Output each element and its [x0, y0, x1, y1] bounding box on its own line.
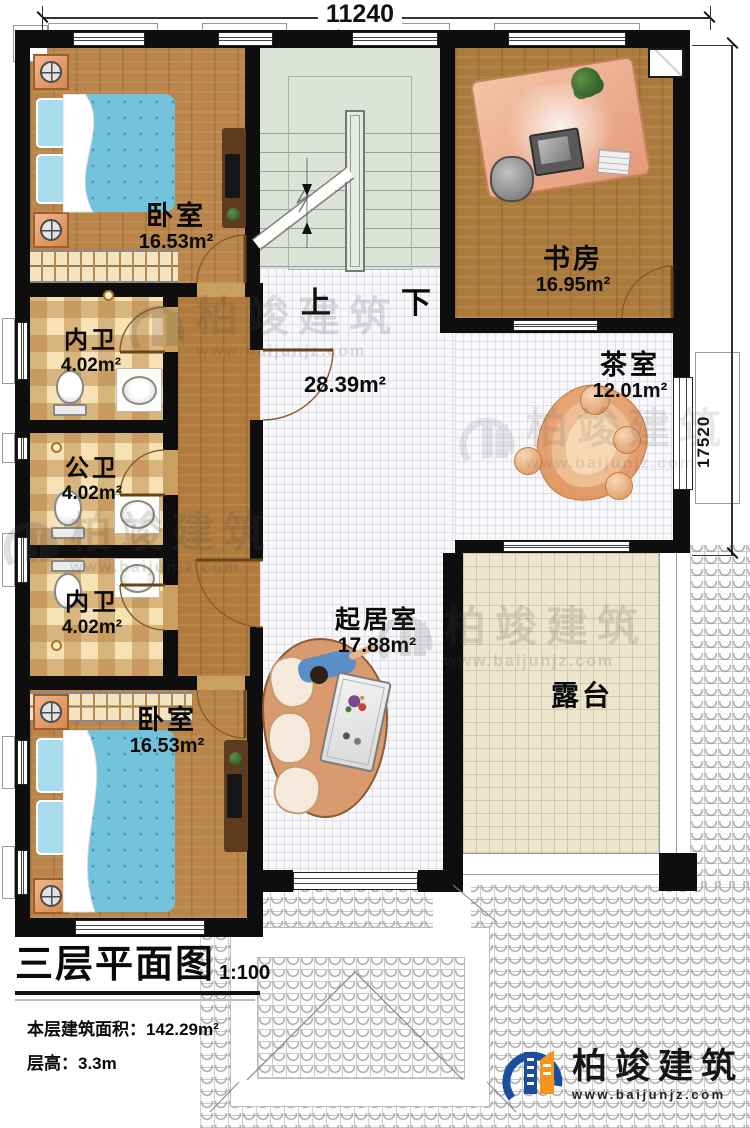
window-tea-terrace-door [503, 541, 630, 552]
sink-basin [122, 376, 157, 405]
label-study: 书房 16.95m² [536, 244, 611, 297]
toilet-tank [51, 527, 85, 539]
wall-hook-icon [51, 640, 62, 651]
terrace-parapet-bottom [463, 853, 677, 875]
room-area: 16.53m² [130, 735, 205, 757]
room-name: 起居室 [335, 606, 419, 634]
dimension-top-value: 11240 [318, 0, 402, 29]
window-left-5 [17, 850, 28, 895]
room-area: 12.01m² [593, 380, 668, 402]
room-name: 卧室 [139, 201, 214, 231]
door-opening-bedroom-top [197, 283, 245, 297]
window-top-2 [218, 32, 273, 46]
wall-tea-right-b [673, 490, 690, 553]
pillow [36, 154, 66, 204]
label-living-room: 起居室 17.88m² [335, 606, 419, 658]
wardrobe [30, 250, 178, 283]
toilet-tank [51, 560, 85, 572]
window-left-3 [17, 537, 28, 583]
room-area: 4.02m² [61, 355, 121, 376]
nightstand [33, 54, 69, 90]
wall-study-left-lower [440, 245, 455, 333]
stair-rail [345, 110, 365, 272]
room-area: 17.88m² [335, 634, 419, 658]
porch-inner-roof [257, 957, 465, 1079]
sink-basin [120, 500, 155, 529]
sill-left-5 [2, 846, 15, 899]
phone-icon [597, 149, 631, 176]
wall-outer-left [15, 30, 30, 937]
sofa-cushion [268, 712, 312, 764]
monitor-icon [227, 774, 242, 818]
nightstand [33, 212, 69, 248]
sink [116, 368, 162, 412]
wall-corridor-right-a [250, 283, 263, 350]
room-name: 露台 [551, 680, 613, 711]
wall-bedroom-bottom-right [247, 676, 263, 937]
room-name: 内卫 [61, 328, 121, 355]
brand-logo-icon [502, 1042, 564, 1108]
sink-basin [120, 564, 155, 593]
brand-name: 柏竣建筑 [572, 1049, 744, 1084]
door-opening-bedroom-bottom [197, 676, 245, 690]
label-bath-public: 公卫 4.02m² [62, 456, 122, 504]
scale-label: 1:100 [219, 962, 270, 985]
window-left-1 [17, 322, 28, 380]
label-stair-down: 下 [401, 278, 431, 322]
tea-stool [605, 472, 633, 500]
plant-icon [229, 752, 242, 765]
wall-bath-divider-2 [15, 545, 178, 558]
terrace-corner-post [659, 853, 697, 891]
plant-icon [227, 208, 240, 221]
wall-hook-icon [51, 442, 62, 453]
title-underline-thick [15, 991, 260, 995]
room-name: 书房 [536, 244, 611, 274]
title-block: 三层平面图 1:100 本层建筑面积：142.29m² 层高：3.3m [15, 933, 270, 1074]
nightstand [33, 694, 69, 730]
bed-blanket [63, 730, 123, 914]
sill-left-4 [2, 736, 15, 789]
sill-left-1 [2, 318, 15, 384]
label-terrace: 露台 [551, 680, 613, 711]
dimension-ext [710, 6, 711, 30]
wall-corridor-right-b [250, 420, 263, 560]
bed [33, 92, 178, 214]
room-name: 卧室 [130, 705, 205, 735]
lamp-icon [40, 61, 62, 83]
sill-left-3 [2, 533, 15, 587]
room-name: 内卫 [62, 590, 122, 617]
dimension-ext [692, 45, 734, 46]
building-area-text: 本层建筑面积：142.29m² [27, 1015, 270, 1040]
floor-height-text: 层高：3.3m [27, 1049, 270, 1074]
window-top-4 [508, 32, 626, 46]
dimension-right-value: 17520 [694, 378, 714, 468]
pillow [36, 738, 66, 793]
brand-website: www.baijunjz.com [572, 1087, 744, 1102]
dimension-line-right [731, 45, 733, 555]
lamp-icon [40, 219, 62, 241]
label-bedroom-top: 卧室 16.53m² [139, 201, 214, 254]
toilet-tank [53, 404, 87, 416]
pillow [36, 800, 66, 855]
room-area: 4.02m² [62, 617, 122, 638]
door-opening-bath-mid [163, 450, 178, 495]
label-bath-inner-top: 内卫 4.02m² [61, 328, 121, 376]
title-underline-thin [15, 999, 255, 1001]
bed-blanket [63, 94, 123, 214]
door-opening-bath-bottom [163, 585, 178, 630]
room-name: 茶室 [593, 350, 668, 380]
bedroom-desk [224, 740, 248, 852]
window-living-south [293, 872, 418, 890]
window-tea-top [513, 320, 598, 331]
room-area: 16.53m² [139, 231, 214, 253]
floor-plan-canvas: 卧室 16.53m² 书房 16.95m² 茶室 12.01m² 内卫 4.02… [0, 0, 750, 1128]
tea-stool [613, 426, 641, 454]
wall-tea-right-a [673, 333, 690, 377]
bedroom-desk [222, 128, 246, 228]
pillow [36, 98, 66, 148]
lamp-icon [40, 701, 62, 723]
room-name: 公卫 [62, 456, 122, 483]
dimension-ext [42, 6, 43, 30]
sill-left-2 [2, 433, 15, 463]
wall-stair-right [440, 48, 455, 245]
wall-stair-left [245, 48, 260, 283]
monitor-icon [225, 154, 240, 198]
label-bath-inner-bottom: 内卫 4.02m² [62, 590, 122, 638]
brand-logo: 柏竣建筑 www.baijunjz.com [502, 1042, 744, 1108]
label-hall-area: 28.39m² [304, 372, 386, 398]
window-top-1 [73, 32, 145, 46]
room-area: 16.95m² [536, 274, 611, 296]
label-stair-up: 上 [301, 278, 331, 322]
person-head-icon [310, 666, 328, 684]
page-title: 三层平面图 [15, 933, 215, 988]
wall-living-south-a [248, 870, 293, 892]
label-tea-room: 茶室 12.01m² [593, 350, 668, 403]
terrace-parapet-right [659, 553, 677, 875]
wall-living-south-b [418, 870, 463, 892]
door-opening-bath-top [163, 307, 178, 352]
flue-box [648, 48, 684, 78]
office-chair [490, 156, 534, 202]
wall-living-terrace [443, 553, 463, 892]
dimension-ext [692, 555, 734, 556]
window-bay-right [673, 377, 693, 490]
window-left-2 [17, 437, 28, 460]
window-left-4 [17, 740, 28, 785]
wall-hook-icon [103, 290, 114, 301]
room-area: 4.02m² [62, 483, 122, 504]
wall-bath-divider-1 [15, 420, 178, 433]
window-top-3 [352, 32, 438, 46]
tea-stool [514, 447, 542, 475]
monitor-icon [529, 127, 585, 176]
label-bedroom-bottom: 卧室 16.53m² [130, 705, 205, 758]
